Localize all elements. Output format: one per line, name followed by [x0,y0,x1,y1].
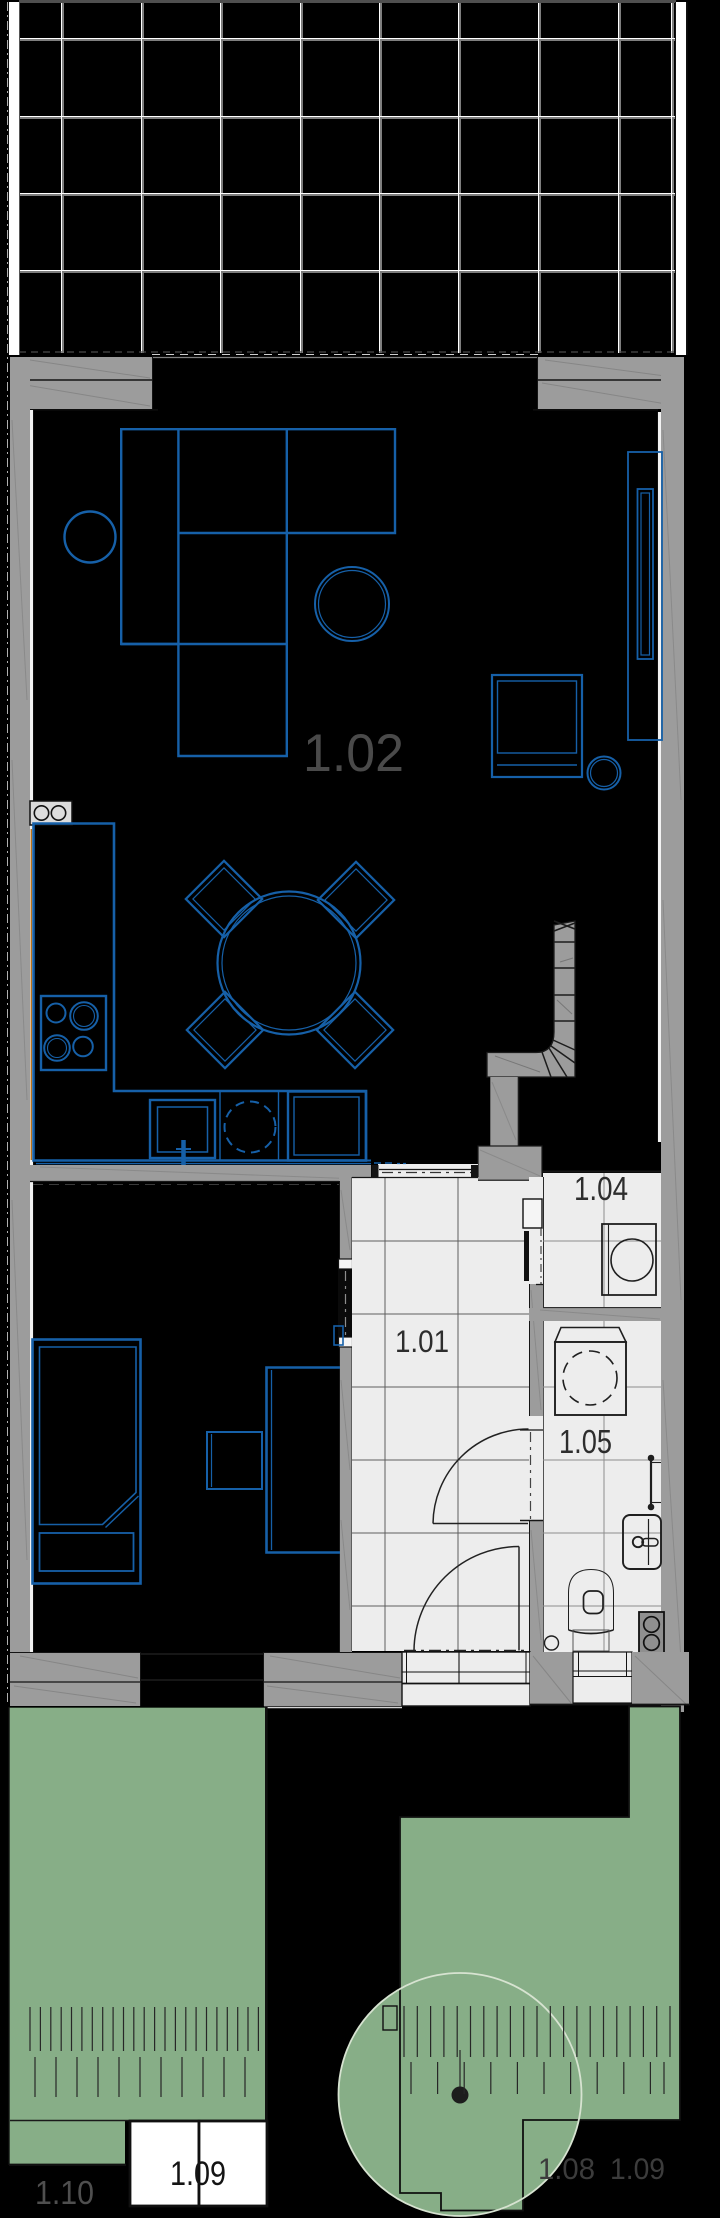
svg-text:1.08: 1.08 [538,2153,595,2186]
svg-text:1.02: 1.02 [303,724,404,783]
svg-text:1.04: 1.04 [574,1170,628,1207]
svg-text:1.01: 1.01 [395,1323,449,1359]
svg-text:1.05: 1.05 [559,1423,612,1460]
svg-text:1.09: 1.09 [170,2155,226,2193]
svg-text:1.10: 1.10 [35,2174,94,2211]
svg-text:1.09: 1.09 [610,2153,665,2186]
